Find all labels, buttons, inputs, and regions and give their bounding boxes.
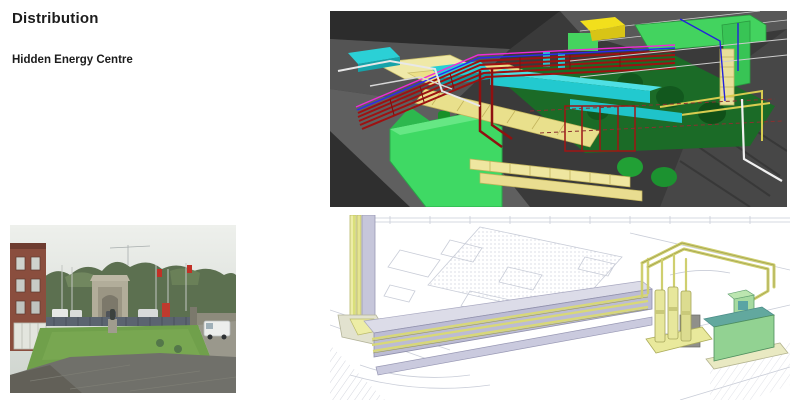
page-subtitle: Hidden Energy Centre — [12, 54, 133, 66]
memorial-arch — [90, 275, 130, 317]
site-photo-image — [10, 225, 236, 393]
slide: Distribution Hidden Energy Centre — [0, 0, 800, 400]
cad-drawing-image — [330, 215, 790, 400]
cad-isometric-drawing — [330, 215, 790, 400]
bim-model-render — [330, 11, 787, 207]
vertical-service-bundle — [350, 215, 375, 318]
site-photo — [10, 225, 236, 393]
page-title: Distribution — [12, 10, 99, 27]
bim-model-image — [330, 11, 787, 207]
